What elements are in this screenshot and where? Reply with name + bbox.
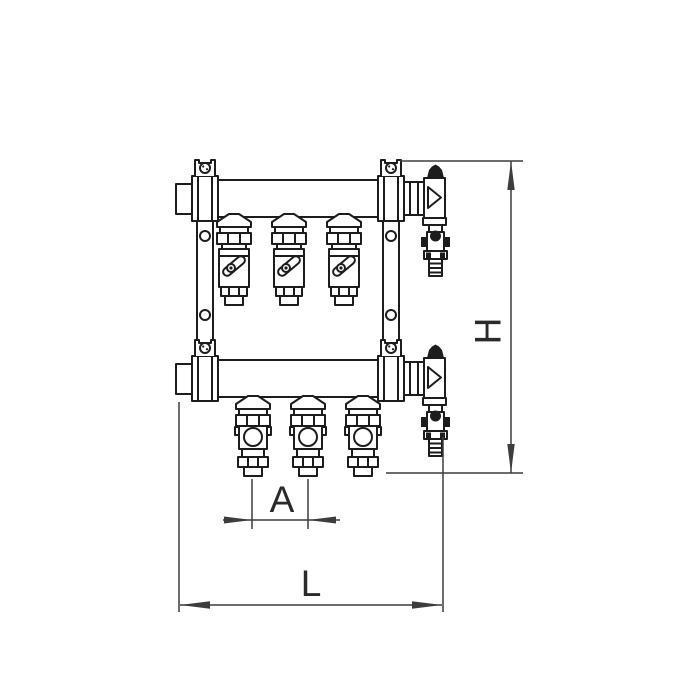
rail-hole-right-lower [386, 310, 396, 320]
manifold-drawing-canvas: H A L [0, 0, 700, 700]
return-valve-1 [235, 396, 271, 476]
l-arrow-right [412, 601, 442, 608]
dimension-spacing: A [223, 479, 340, 529]
clip-top-right [381, 160, 401, 176]
h-arrow-up [507, 161, 514, 190]
return-manifold-bar [196, 360, 404, 397]
clip-bottom-right [381, 340, 401, 356]
rail-hole-right-upper [386, 231, 396, 241]
bracket-top-right [378, 176, 404, 221]
rail-hole-left-lower [200, 310, 210, 320]
manifold-body [176, 160, 450, 476]
supply-valve-2 [272, 214, 306, 305]
clip-top-left [195, 160, 215, 176]
supply-manifold-bar [196, 180, 404, 217]
l-arrow-left [180, 601, 210, 608]
supply-valve-3 [327, 214, 361, 305]
clip-bottom-left [195, 340, 215, 356]
height-label: H [468, 318, 509, 345]
h-arrow-down [507, 444, 514, 473]
supply-valve-1 [217, 214, 251, 305]
a-arrow-right [308, 517, 336, 524]
bracket-top-left [192, 176, 218, 221]
bracket-bottom-left [192, 356, 218, 401]
manifold-technical-drawing: H A L [0, 0, 700, 700]
length-label: L [301, 563, 322, 604]
return-valve-3 [345, 396, 381, 476]
spacing-label: A [270, 479, 295, 520]
drain-valve-assembly-top [404, 165, 450, 277]
rail-hole-left-upper [200, 231, 210, 241]
bracket-bottom-right [378, 356, 404, 401]
a-arrow-left [224, 517, 252, 524]
return-valve-2 [290, 396, 326, 476]
